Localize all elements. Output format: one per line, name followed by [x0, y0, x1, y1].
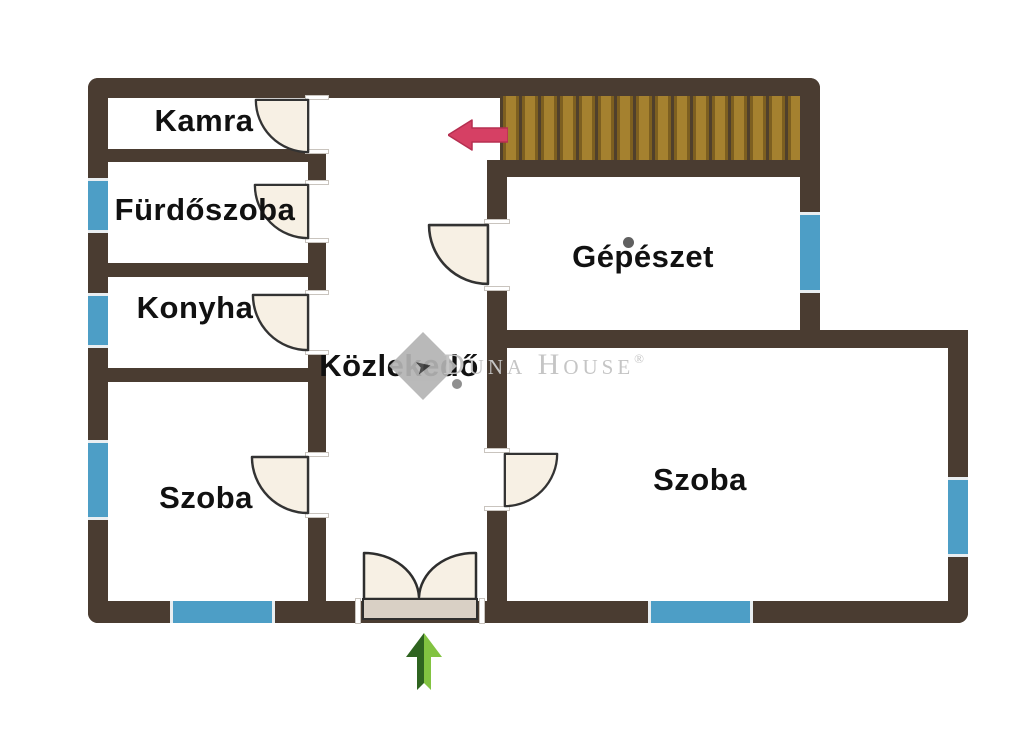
wall-segment — [88, 263, 326, 277]
watermark-logo-glyph: ➤ — [413, 354, 434, 377]
door-konyha — [251, 293, 310, 352]
window — [88, 440, 108, 520]
door-kamra — [254, 98, 310, 154]
window — [170, 601, 275, 623]
entrance-arrow-icon — [406, 633, 442, 691]
wall-segment — [308, 515, 326, 603]
wall-segment — [308, 240, 326, 293]
wall-segment — [487, 160, 820, 177]
wall-segment — [487, 160, 507, 223]
window — [88, 178, 108, 233]
door-szoba-right — [503, 452, 559, 508]
watermark-brand: Duna House® — [443, 348, 644, 382]
room-label-szoba-left: Szoba — [159, 480, 253, 516]
door-jamb — [484, 286, 510, 291]
wall-segment — [308, 152, 326, 183]
window — [948, 477, 968, 557]
entrance-double-door — [362, 545, 478, 621]
wall-segment — [88, 368, 326, 382]
room-label-szoba-right: Szoba — [653, 462, 747, 498]
door-gepeszet — [427, 223, 490, 286]
window — [648, 601, 753, 623]
registered-mark: ® — [634, 351, 644, 366]
wall-segment — [487, 508, 507, 603]
wall-segment — [88, 78, 820, 98]
room-label-konyha: Konyha — [137, 290, 254, 326]
watermark-brand-text: Duna House — [443, 348, 634, 381]
floor-plan: Kamra Fürdőszoba Konyha Szoba Közlekedő … — [0, 0, 1024, 733]
wall-segment — [498, 330, 968, 348]
room-label-kamra: Kamra — [155, 103, 254, 139]
window — [88, 293, 108, 348]
door-jamb — [355, 598, 361, 624]
window — [800, 212, 820, 293]
stairs-icon — [500, 96, 800, 160]
stairs-direction-arrow-icon — [448, 117, 508, 153]
watermark-dot — [452, 379, 462, 389]
watermark-dot — [623, 237, 634, 248]
room-label-furdoszoba: Fürdőszoba — [115, 192, 296, 228]
room-label-gepeszet: Gépészet — [572, 239, 714, 275]
door-jamb — [479, 598, 485, 624]
door-szoba-left — [250, 455, 310, 515]
